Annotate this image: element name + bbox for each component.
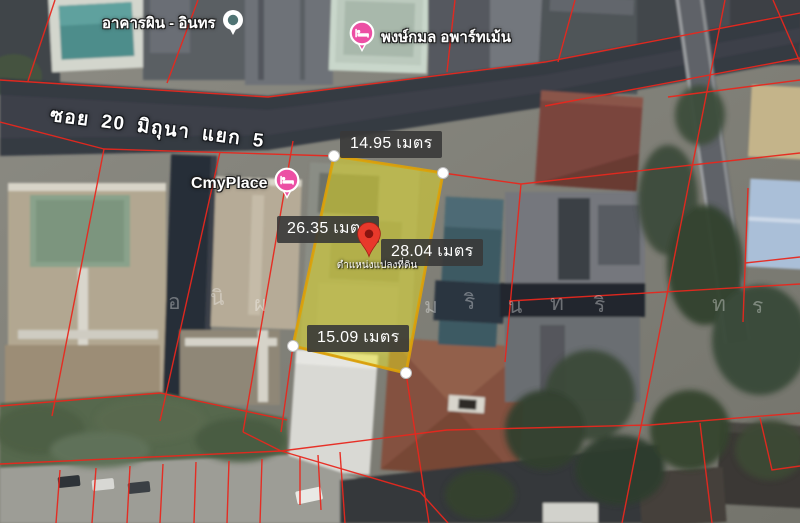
pin-caption: ตำแหน่งแปลงที่ดิน (317, 258, 437, 273)
place-label-apartment[interactable]: พงษ์กมล อพาร์ทเม้น (348, 20, 511, 54)
measurement-top: 14.95 เมตร (340, 131, 442, 158)
watermark-letter: นิ (210, 282, 224, 315)
map-canvas: อ นิ ผ ม ริ น ท ริ ท ร ซอย 20 มิถุนา แยก… (0, 0, 800, 523)
watermark-letter: ริ (594, 289, 605, 322)
place-label-cmyplace[interactable]: CmyPlace (191, 167, 301, 201)
watermark-letter: อ (168, 286, 181, 319)
vertex-handle[interactable] (401, 368, 412, 379)
watermark-letter: ม (424, 290, 438, 323)
poi-pin-icon (221, 8, 245, 38)
lodging-pin-icon (273, 167, 301, 201)
watermark-letter: ริ (464, 286, 475, 319)
place-label-building[interactable]: อาคารผิน - อินทร (102, 8, 245, 38)
watermark-letter: ร (752, 290, 763, 323)
place-name: CmyPlace (191, 175, 268, 193)
vertex-handle[interactable] (438, 168, 449, 179)
vertex-handle[interactable] (288, 341, 299, 352)
vertex-handle[interactable] (329, 151, 340, 162)
watermark-letter: ท (712, 288, 726, 321)
place-name: อาคารผิน - อินทร (102, 11, 216, 35)
place-name: พงษ์กมล อพาร์ทเม้น (381, 25, 511, 49)
lodging-pin-icon (348, 20, 376, 54)
watermark-letter: ท (550, 287, 564, 320)
watermark-letter: ผ (254, 288, 266, 321)
measurement-bottom: 15.09 เมตร (307, 325, 409, 352)
watermark-letter: น (508, 290, 522, 323)
